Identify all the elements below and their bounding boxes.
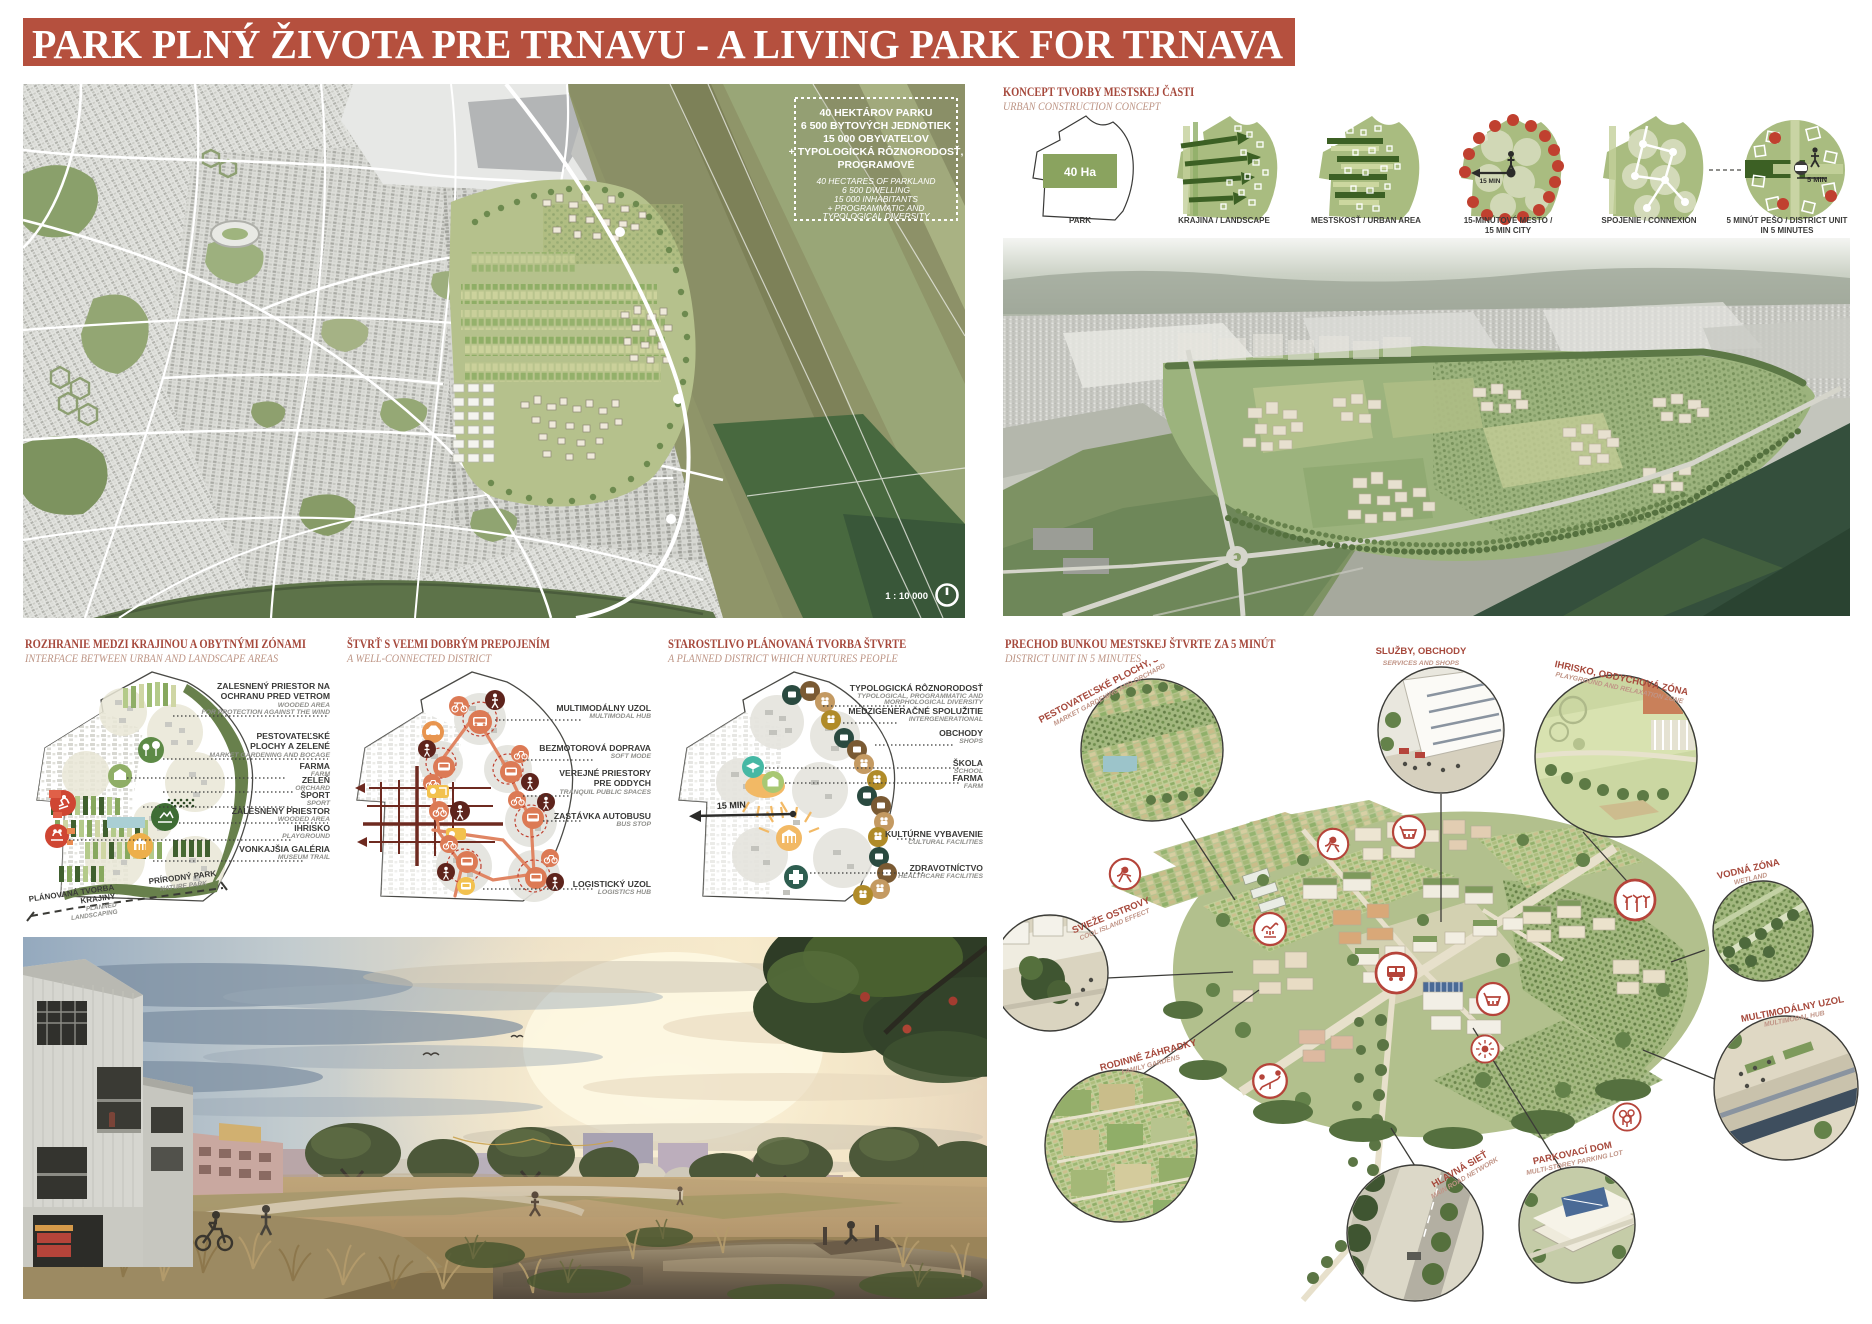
svg-text:15 MIN CITY: 15 MIN CITY bbox=[1485, 226, 1532, 235]
svg-text:5 MINÚT PEŠO / DISTRICT UNIT: 5 MINÚT PEŠO / DISTRICT UNIT bbox=[1727, 216, 1848, 225]
svg-text:40 HEKTÁROV PARKU: 40 HEKTÁROV PARKU bbox=[820, 106, 933, 119]
svg-text:FOR PROTECTION AGAINST THE WIN: FOR PROTECTION AGAINST THE WIND bbox=[201, 709, 330, 716]
svg-text:1 : 10 000: 1 : 10 000 bbox=[885, 591, 928, 602]
svg-text:MORPHOLOGICAL DIVERSITY: MORPHOLOGICAL DIVERSITY bbox=[884, 699, 984, 706]
svg-text:PRE ODDYCH: PRE ODDYCH bbox=[594, 778, 651, 788]
svg-text:SPOJENIE / CONNEXION: SPOJENIE / CONNEXION bbox=[1601, 216, 1696, 225]
svg-text:WOODED AREA: WOODED AREA bbox=[278, 816, 330, 823]
svg-text:OCHRANU PRED VETROM: OCHRANU PRED VETROM bbox=[221, 691, 330, 701]
svg-text:INTERGENERATIONAL: INTERGENERATIONAL bbox=[909, 716, 983, 723]
svg-text:5 MIN: 5 MIN bbox=[1807, 175, 1827, 184]
svg-text:PESTOVATEĽSKÉ: PESTOVATEĽSKÉ bbox=[256, 731, 330, 741]
svg-text:CULTURAL FACILITIES: CULTURAL FACILITIES bbox=[908, 839, 983, 846]
svg-text:TYPOLOGICAL DIVERSITY: TYPOLOGICAL DIVERSITY bbox=[822, 211, 930, 221]
svg-text:IHRISKO: IHRISKO bbox=[294, 823, 330, 833]
svg-text:MARKET GARDENING AND BOCAGE: MARKET GARDENING AND BOCAGE bbox=[209, 752, 330, 759]
svg-text:VONKAJŠIA GALÉRIA: VONKAJŠIA GALÉRIA bbox=[239, 843, 330, 854]
svg-text:MUSEUM TRAIL: MUSEUM TRAIL bbox=[278, 854, 330, 861]
svg-text:WOODED AREA: WOODED AREA bbox=[278, 702, 330, 709]
svg-text:BUS STOP: BUS STOP bbox=[616, 821, 651, 828]
svg-text:MEDZIGENERAČNÉ SPOLUŽITIE: MEDZIGENERAČNÉ SPOLUŽITIE bbox=[848, 705, 983, 716]
svg-text:SHOPS: SHOPS bbox=[959, 738, 983, 745]
svg-text:SPORT: SPORT bbox=[307, 800, 331, 807]
svg-text:BEZMOTOROVÁ DOPRAVA: BEZMOTOROVÁ DOPRAVA bbox=[539, 743, 651, 753]
svg-text:PLAYGROUND: PLAYGROUND bbox=[282, 833, 330, 840]
svg-text:KULTÚRNE VYBAVENIE: KULTÚRNE VYBAVENIE bbox=[885, 828, 983, 839]
svg-text:PARK: PARK bbox=[1069, 216, 1091, 225]
svg-text:ŠKOLA: ŠKOLA bbox=[953, 757, 983, 768]
svg-text:MULTIMODÁLNY UZOL: MULTIMODÁLNY UZOL bbox=[556, 703, 651, 713]
svg-text:KRAJINA / LANDSCAPE: KRAJINA / LANDSCAPE bbox=[1178, 216, 1270, 225]
svg-text:ZASTÁVKA AUTOBUSU: ZASTÁVKA AUTOBUSU bbox=[554, 811, 651, 821]
svg-text:ZDRAVOTNÍCTVO: ZDRAVOTNÍCTVO bbox=[910, 863, 984, 873]
svg-text:TRANQUIL PUBLIC SPACES: TRANQUIL PUBLIC SPACES bbox=[559, 789, 651, 796]
svg-text:IN 5 MINUTES: IN 5 MINUTES bbox=[1761, 226, 1815, 235]
svg-text:15 000 OBYVATEĽOV: 15 000 OBYVATEĽOV bbox=[823, 133, 929, 145]
svg-text:LOGISTICS HUB: LOGISTICS HUB bbox=[598, 889, 651, 896]
svg-text:SCHOOL: SCHOOL bbox=[954, 768, 983, 775]
svg-text:+ TYPOLOGICKÁ RÔZNORODOSŤ,: + TYPOLOGICKÁ RÔZNORODOSŤ, bbox=[789, 145, 964, 158]
svg-text:FARM: FARM bbox=[311, 771, 331, 778]
svg-text:15 MIN: 15 MIN bbox=[717, 799, 746, 811]
svg-text:ORCHARD: ORCHARD bbox=[295, 785, 330, 792]
svg-text:ZALESNENÝ PRIESTOR NA: ZALESNENÝ PRIESTOR NA bbox=[217, 680, 330, 691]
svg-text:TYPOLOGICKÁ RÔZNORODOSŤ: TYPOLOGICKÁ RÔZNORODOSŤ bbox=[850, 682, 984, 693]
svg-text:HEALTHCARE FACILITIES: HEALTHCARE FACILITIES bbox=[898, 873, 983, 880]
svg-text:6 500 BYTOVÝCH JEDNOTIEK: 6 500 BYTOVÝCH JEDNOTIEK bbox=[801, 119, 952, 132]
svg-text:15 MIN: 15 MIN bbox=[1480, 178, 1501, 185]
svg-text:40 Ha: 40 Ha bbox=[1064, 165, 1096, 179]
svg-text:15-MINÚTOVÉ MESTO /: 15-MINÚTOVÉ MESTO / bbox=[1464, 216, 1553, 225]
svg-text:PLOCHY A ZELENÉ: PLOCHY A ZELENÉ bbox=[250, 741, 330, 751]
svg-text:MULTIMODAL HUB: MULTIMODAL HUB bbox=[589, 713, 651, 720]
svg-text:LOGISTICKÝ UZOL: LOGISTICKÝ UZOL bbox=[573, 878, 651, 889]
svg-text:FARM: FARM bbox=[964, 783, 984, 790]
svg-text:OBCHODY: OBCHODY bbox=[939, 728, 983, 738]
svg-text:PROGRAMOVÉ: PROGRAMOVÉ bbox=[837, 158, 914, 171]
svg-text:VEREJNÉ PRIESTORY: VEREJNÉ PRIESTORY bbox=[559, 768, 651, 778]
svg-text:MESTSKOSŤ / URBAN AREA: MESTSKOSŤ / URBAN AREA bbox=[1311, 216, 1421, 225]
svg-text:FARMA: FARMA bbox=[299, 761, 330, 771]
svg-text:SOFT MODE: SOFT MODE bbox=[611, 753, 652, 760]
